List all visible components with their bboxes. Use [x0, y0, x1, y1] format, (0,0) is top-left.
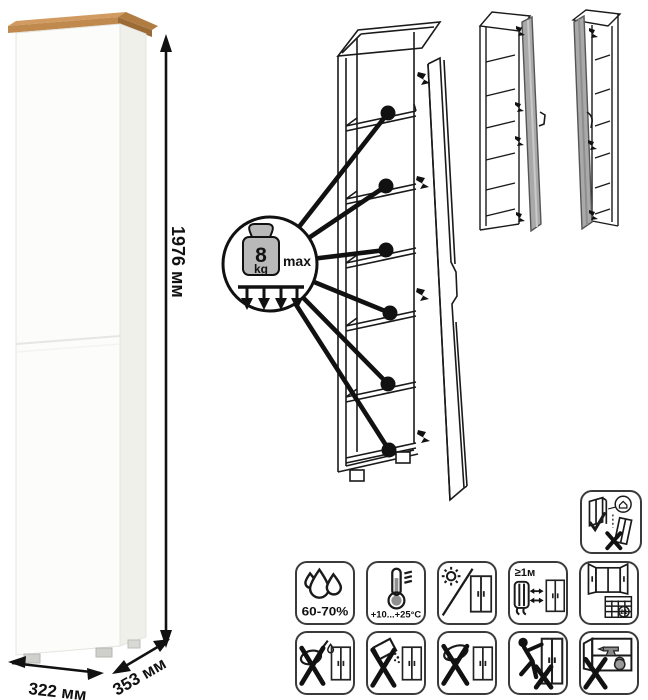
- cabinet-body: [16, 24, 146, 663]
- temperature-caption: +10...+25°C: [371, 609, 422, 619]
- cabinet-foot: [24, 654, 40, 663]
- x-mark: [444, 646, 467, 683]
- radiator-icon: [515, 582, 529, 615]
- ventilation-icon: 21: [579, 561, 639, 625]
- load-max-label: max: [283, 253, 311, 269]
- distance-caption: ≥1м: [515, 567, 536, 579]
- cabinet-foot: [128, 640, 140, 648]
- load-unit: kg: [254, 262, 268, 276]
- cabinet-carcass: [338, 22, 467, 500]
- no-solvents-icon: [295, 631, 355, 695]
- no-wet-cleaning-icon: [437, 631, 497, 695]
- sun-icon: [442, 567, 461, 586]
- variant-left-hinged: [573, 10, 620, 229]
- temperature-icon: +10...+25°C: [366, 561, 426, 625]
- variant-right-hinged: [480, 12, 545, 231]
- no-dragging-icon: [508, 631, 568, 695]
- width-label: 322 мм: [28, 679, 88, 700]
- cabinet-line-drawing: 8 kg max: [200, 0, 470, 540]
- cabinet-photo: 1976 мм 322 мм 353 мм: [0, 0, 200, 700]
- kettlebell-icon: [615, 657, 625, 669]
- double-arrows: [530, 588, 544, 603]
- height-label: 1976 мм: [168, 226, 188, 298]
- no-heavy-objects-icon: [579, 631, 639, 695]
- calendar-day: 21: [620, 609, 628, 616]
- x-mark: [373, 650, 394, 685]
- width-dimension-arrow: 322 мм: [8, 656, 104, 700]
- max-load-callout: 8 kg max: [223, 217, 317, 311]
- open-door: [428, 58, 467, 500]
- hinges: [416, 72, 430, 443]
- humidity-caption: 60-70%: [302, 605, 349, 618]
- humidity-icon: 60-70%: [295, 561, 355, 625]
- no-abrasives-icon: [366, 631, 426, 695]
- powder-dots: [394, 652, 400, 663]
- heat-distance-icon: ≥1м: [508, 561, 568, 625]
- anvil-icon: [599, 647, 619, 655]
- x-mark: [607, 533, 620, 548]
- x-mark: [586, 659, 606, 687]
- depth-label: 353 мм: [110, 654, 170, 700]
- furniture-instruction-sheet: 1976 мм 322 мм 353 мм: [0, 0, 648, 700]
- x-mark: [302, 648, 323, 683]
- open-window-icon: [588, 564, 627, 594]
- height-dimension-arrow: 1976 мм: [160, 34, 188, 648]
- cabinet-foot: [96, 648, 112, 657]
- door-variants: [470, 0, 648, 245]
- anti-tip-anchoring-icon: [580, 490, 642, 554]
- no-direct-sunlight-icon: [437, 561, 497, 625]
